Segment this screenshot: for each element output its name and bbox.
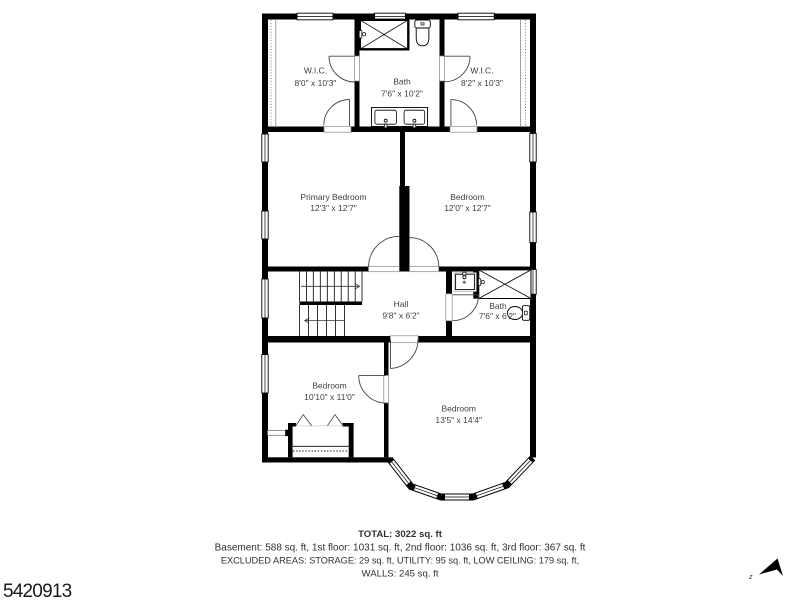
- svg-text:Basement: 588 sq. ft, 1st floo: Basement: 588 sq. ft, 1st floor: 1031 sq…: [215, 543, 586, 554]
- svg-text:Hall: Hall: [394, 299, 409, 309]
- svg-text:7'6" x 10'2": 7'6" x 10'2": [381, 88, 423, 98]
- svg-text:12'3" x 12'7": 12'3" x 12'7": [310, 203, 357, 213]
- svg-text:9'8" x 6'2": 9'8" x 6'2": [382, 311, 419, 321]
- svg-text:Bedroom: Bedroom: [441, 404, 476, 414]
- svg-text:12'0" x 12'7": 12'0" x 12'7": [444, 203, 491, 213]
- svg-text:Bedroom: Bedroom: [450, 192, 485, 202]
- svg-text:WALLS: 245 sq. ft: WALLS: 245 sq. ft: [362, 569, 439, 580]
- svg-text:7'6" x 6'2": 7'6" x 6'2": [479, 311, 516, 321]
- svg-text:Bedroom: Bedroom: [312, 380, 347, 390]
- svg-text:W.I.C.: W.I.C.: [470, 65, 493, 75]
- svg-text:8'0" x 10'3": 8'0" x 10'3": [295, 78, 337, 88]
- svg-text:W.I.C.: W.I.C.: [304, 65, 327, 75]
- svg-text:10'10" x 11'0": 10'10" x 11'0": [304, 392, 355, 402]
- svg-text:EXCLUDED AREAS: STORAGE: 29 sq: EXCLUDED AREAS: STORAGE: 29 sq. ft, UTIL…: [221, 556, 579, 566]
- svg-text:TOTAL: 3022 sq. ft: TOTAL: 3022 sq. ft: [358, 529, 443, 540]
- svg-text:Bath: Bath: [393, 77, 411, 87]
- svg-text:Primary Bedroom: Primary Bedroom: [300, 192, 366, 202]
- svg-text:5420913: 5420913: [3, 581, 72, 600]
- svg-text:z: z: [748, 574, 753, 581]
- svg-text:13'5" x 14'4": 13'5" x 14'4": [435, 415, 482, 425]
- svg-text:Bath: Bath: [489, 301, 507, 311]
- svg-text:8'2" x 10'3": 8'2" x 10'3": [461, 78, 503, 88]
